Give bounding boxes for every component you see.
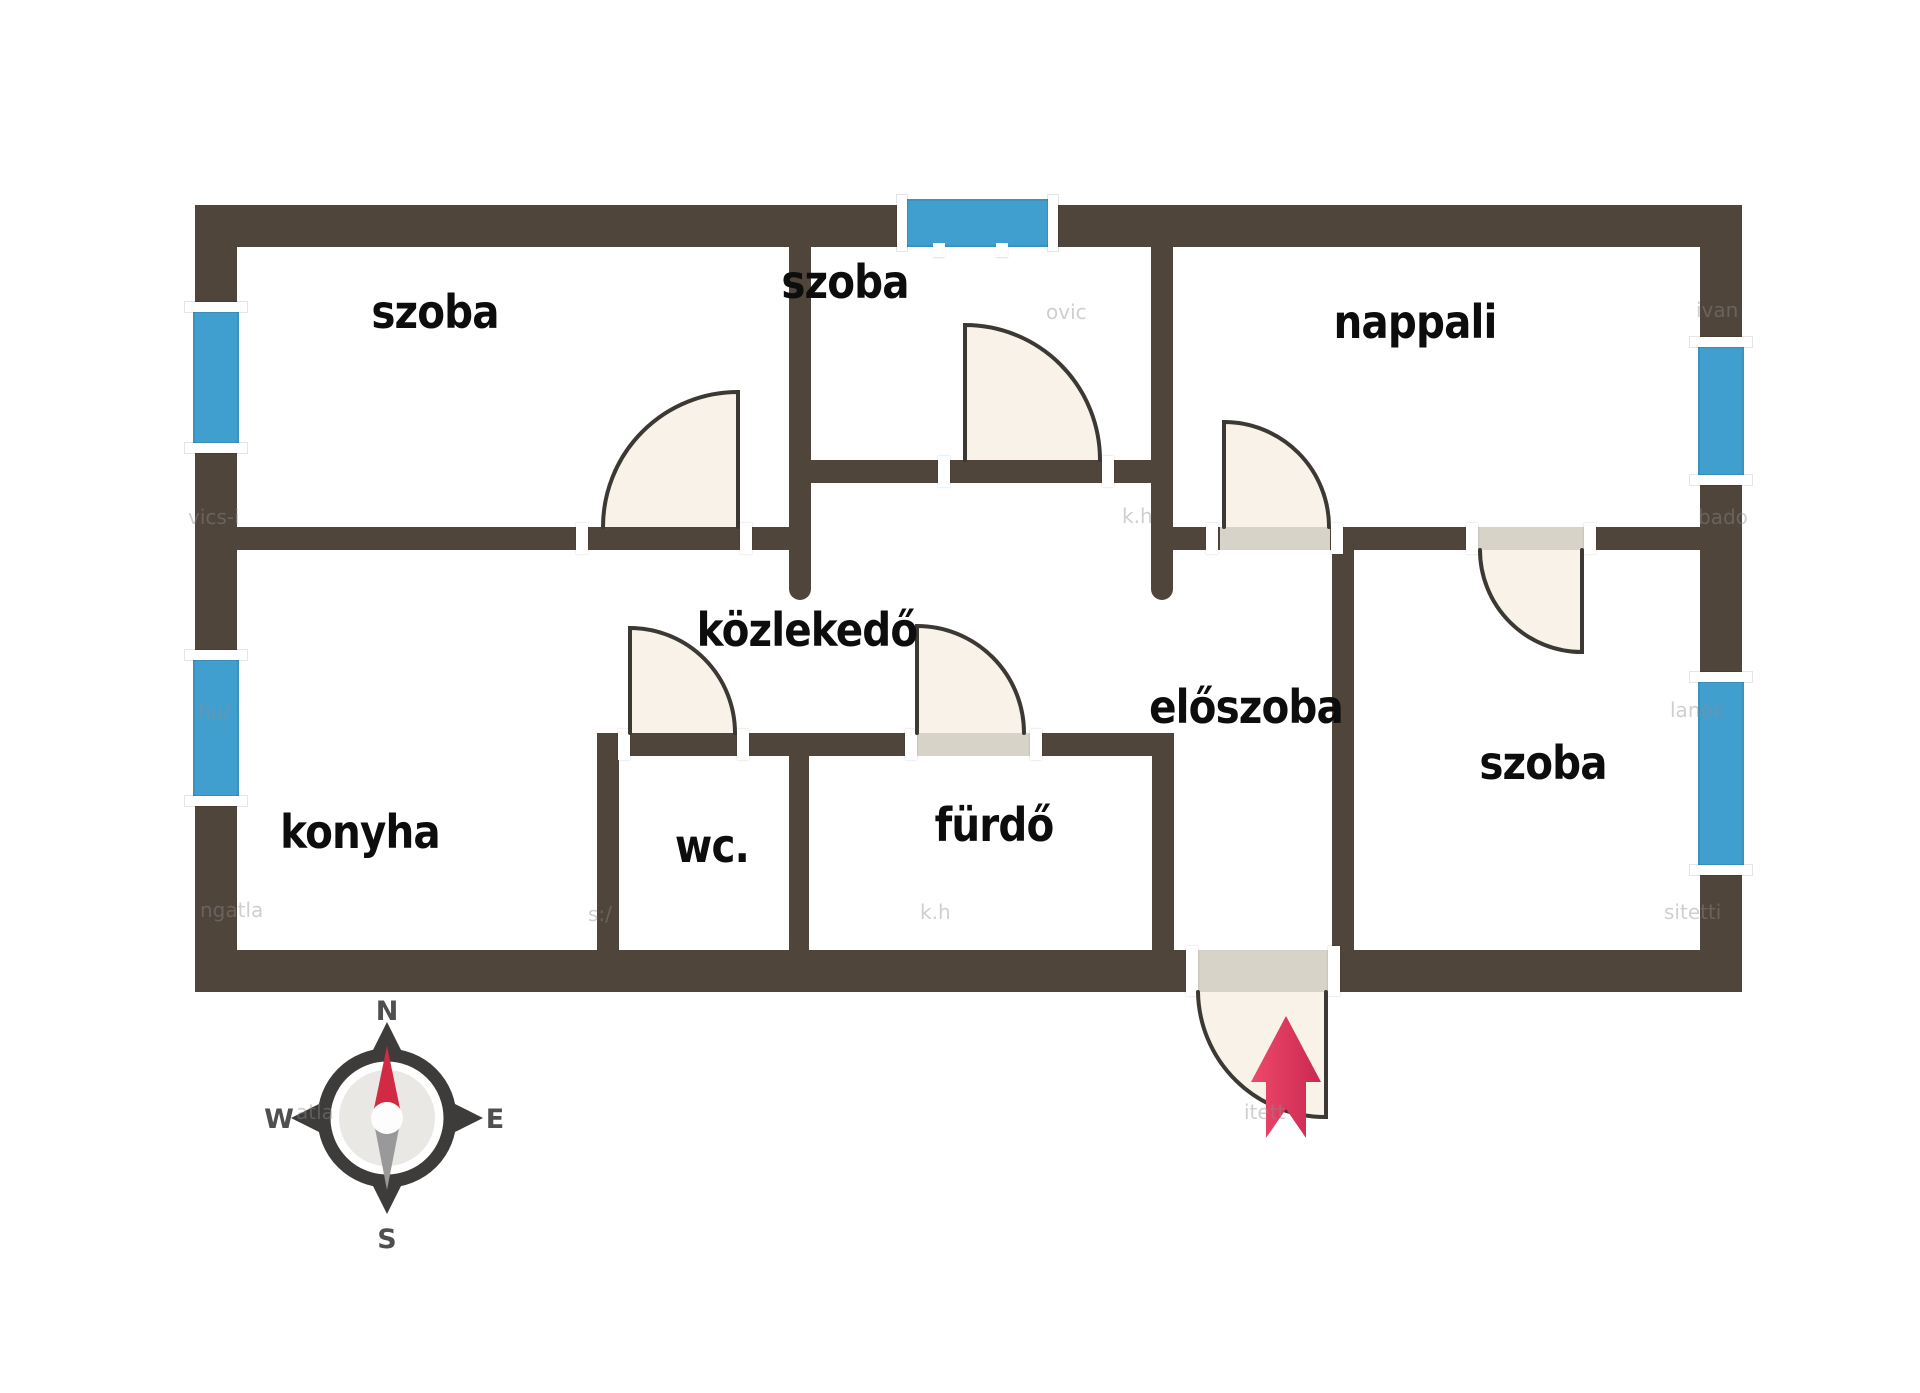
watermark-fragment: k.h <box>920 900 951 924</box>
door-arc-furdo <box>917 626 1024 733</box>
room-label-eloszoba: előszoba <box>1149 680 1343 734</box>
compass-hub <box>371 1102 403 1134</box>
watermark-fragment: lanok <box>1670 698 1724 722</box>
compass-rose: N E S W <box>264 996 504 1255</box>
watermark-fragment: ngatla <box>200 898 263 922</box>
watermark-fragment: k.h <box>1122 504 1153 528</box>
watermark-fragment: atla <box>296 1100 334 1124</box>
watermark-fragment: ivan <box>1696 298 1738 322</box>
room-label-wc: wc. <box>675 819 749 873</box>
door-arc-szoba-nw <box>603 392 738 527</box>
watermark-fragment: sitetti <box>1664 900 1721 924</box>
watermark-fragment: bado <box>1698 505 1748 529</box>
compass-label-w: W <box>264 1104 294 1135</box>
room-label-szoba-n: szoba <box>781 255 908 309</box>
compass-label-s: S <box>377 1224 396 1255</box>
room-label-furdo: fürdő <box>935 798 1054 852</box>
door-arc-szoba-se <box>1480 550 1582 652</box>
room-label-kozlekedo: közlekedő <box>697 603 918 657</box>
compass-label-n: N <box>376 996 399 1027</box>
compass-label-e: E <box>486 1104 504 1135</box>
watermark-fragment: s:/ <box>588 902 612 926</box>
room-label-szoba-nw: szoba <box>371 285 498 339</box>
floor-plan: N E S W vics-ihu/ngatlaatlaovick.hs:/k.h… <box>0 0 1920 1393</box>
door-arc-entrance <box>1198 992 1326 1117</box>
watermark-fragment: itett <box>1244 1100 1285 1124</box>
room-label-szoba-se: szoba <box>1479 736 1606 790</box>
door-arc-nappali <box>1224 422 1329 527</box>
room-label-konyha: konyha <box>280 805 440 859</box>
watermark-fragment: hu/ <box>198 700 230 724</box>
watermark-fragment: ovic <box>1046 300 1087 324</box>
room-label-nappali: nappali <box>1333 295 1496 349</box>
plan-graphics: N E S W <box>0 0 1920 1393</box>
watermark-fragment: vics-i <box>188 505 240 529</box>
door-arc-szoba-n <box>965 325 1100 460</box>
